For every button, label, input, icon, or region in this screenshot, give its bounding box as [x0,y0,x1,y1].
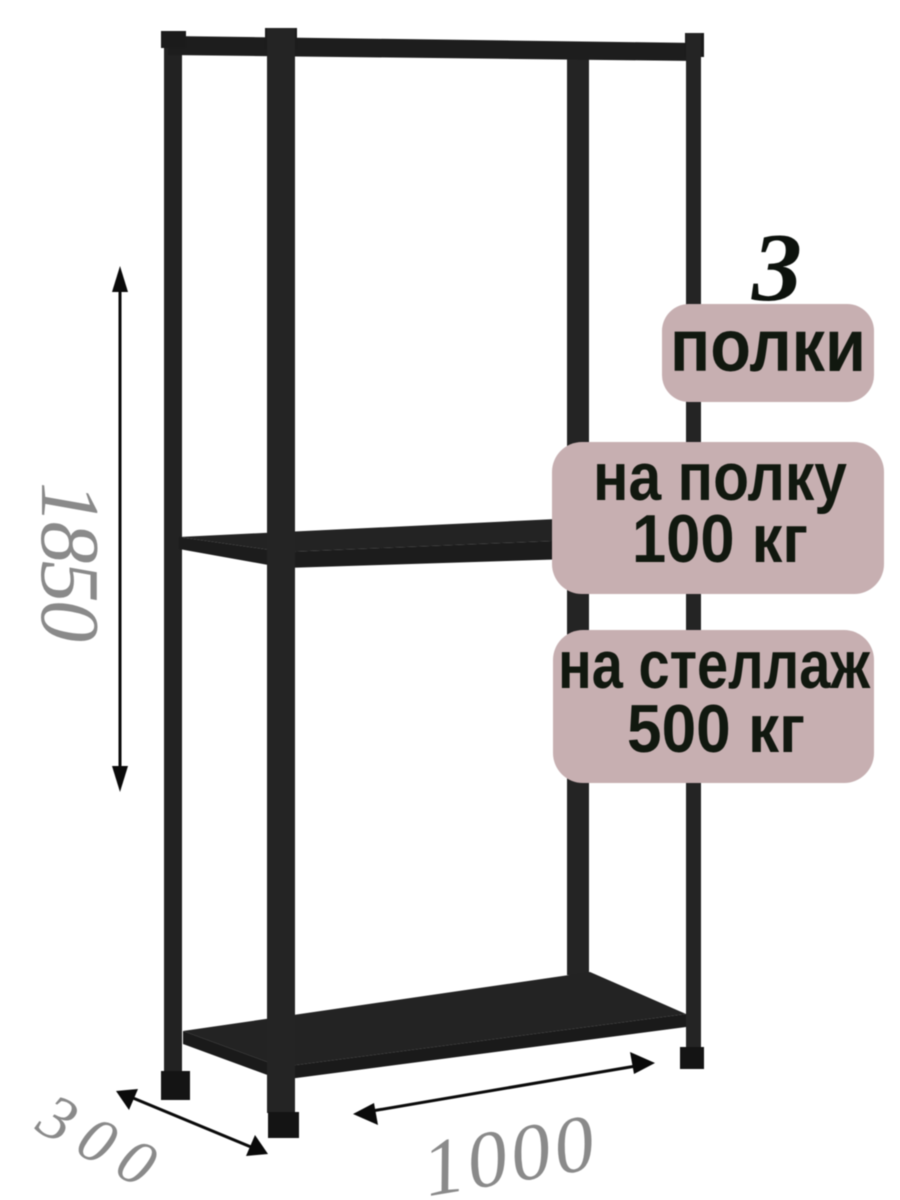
svg-text:полки: полки [670,304,866,387]
svg-text:500 кг: 500 кг [627,691,805,767]
svg-text:1850: 1850 [23,482,116,642]
svg-text:100 кг: 100 кг [632,501,808,577]
